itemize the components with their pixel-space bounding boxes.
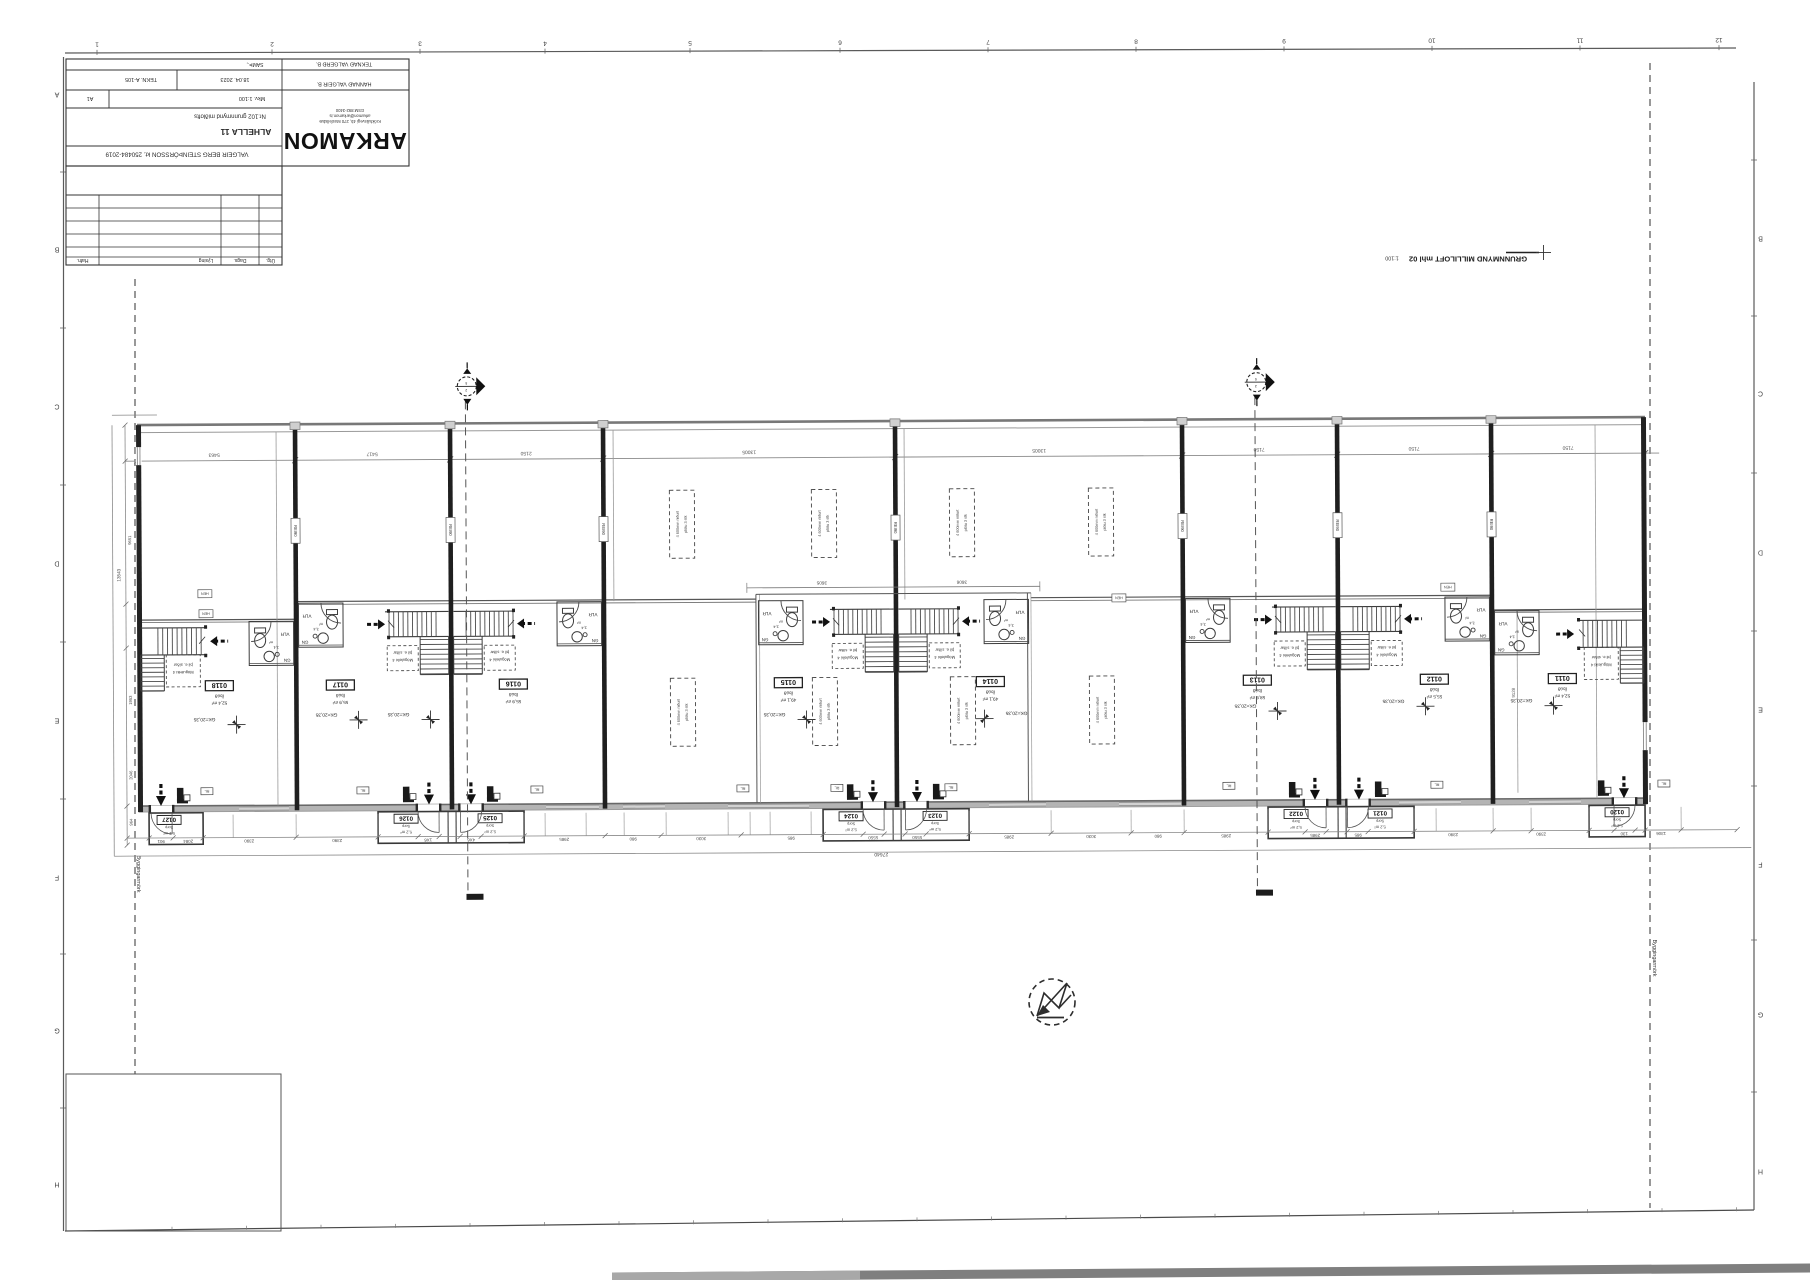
svg-text:2084: 2084 <box>183 839 193 844</box>
svg-text:130: 130 <box>1620 831 1628 836</box>
svg-text:Sorp: Sorp <box>486 823 494 827</box>
svg-text:VLR: VLR <box>1189 609 1199 614</box>
svg-text:F: F <box>1758 861 1762 868</box>
svg-text:Krókhálsvegi 4b, 270 Mosfellsb: Krókhálsvegi 4b, 270 Mosfellsbæ <box>319 119 381 124</box>
svg-text:GK=20,35: GK=20,35 <box>1234 702 1256 708</box>
svg-text:REI90: REI90 <box>601 523 606 535</box>
svg-text:1: 1 <box>95 41 99 48</box>
svg-text:HEN: HEN <box>202 611 210 615</box>
svg-text:3,4: 3,4 <box>1469 621 1474 625</box>
svg-text:REI90: REI90 <box>1489 519 1494 531</box>
svg-text:RL: RL <box>534 787 539 791</box>
svg-text:plötu 3 stk: plötu 3 stk <box>685 703 689 720</box>
svg-text:3030: 3030 <box>1086 834 1096 839</box>
svg-text:Sorp: Sorp <box>1292 819 1300 823</box>
svg-text:GN: GN <box>1019 636 1026 641</box>
svg-text:G: G <box>1758 1011 1763 1018</box>
svg-text:þil e. síðar: þil e. síðar <box>393 650 413 655</box>
svg-text:ALHELLA 11: ALHELLA 11 <box>220 127 271 137</box>
svg-text:2985: 2985 <box>1310 833 1320 838</box>
svg-text:2390: 2390 <box>1536 832 1546 837</box>
svg-text:0124: 0124 <box>844 812 858 819</box>
svg-text:3605: 3605 <box>816 580 827 585</box>
svg-text:964: 964 <box>129 818 134 826</box>
svg-text:Dags.: Dags. <box>233 257 246 263</box>
svg-text:A: A <box>54 91 59 98</box>
svg-text:1306: 1306 <box>1656 831 1666 836</box>
svg-text:4 600mm niðurt: 4 600mm niðurt <box>1094 508 1099 535</box>
svg-text:E: E <box>54 717 59 724</box>
svg-text:Möguleiki 4: Möguleiki 4 <box>172 670 193 675</box>
svg-text:GK=20,35: GK=20,35 <box>315 711 337 717</box>
svg-text:GSM:892-3400: GSM:892-3400 <box>335 108 364 113</box>
svg-text:Íbúð: Íbúð <box>1252 688 1261 694</box>
svg-text:REI90: REI90 <box>448 524 453 536</box>
svg-text:9128: 9128 <box>1511 687 1516 697</box>
svg-text:5550: 5550 <box>912 835 922 840</box>
svg-text:Sorp: Sorp <box>931 821 939 825</box>
svg-text:plötu 3 stk: plötu 3 stk <box>965 702 969 719</box>
svg-text:4 600mm niðurt: 4 600mm niðurt <box>1095 696 1100 723</box>
svg-text:1X6: 1X6 <box>424 838 432 843</box>
svg-text:SAMÞ.,: SAMÞ., <box>247 61 264 67</box>
svg-text:GN: GN <box>1480 633 1487 638</box>
svg-text:3,4: 3,4 <box>274 645 279 649</box>
svg-text:49,1 m²: 49,1 m² <box>982 696 998 701</box>
svg-text:0117: 0117 <box>333 680 348 687</box>
svg-text:Möguleiki 4: Möguleiki 4 <box>1279 653 1300 658</box>
svg-text:13005: 13005 <box>742 449 756 455</box>
svg-text:5463: 5463 <box>208 451 219 457</box>
svg-text:VLR: VLR <box>302 614 312 619</box>
svg-text:2390: 2390 <box>244 838 254 843</box>
svg-text:ARKAMON: ARKAMON <box>283 128 407 154</box>
svg-text:985: 985 <box>1354 833 1362 838</box>
svg-text:arkamon@arkamon.is: arkamon@arkamon.is <box>329 114 370 119</box>
svg-text:þil e. síðar: þil e. síðar <box>1591 655 1611 660</box>
svg-text:52,4 m²: 52,4 m² <box>1554 693 1570 698</box>
svg-text:3,4: 3,4 <box>1008 623 1013 627</box>
svg-text:C: C <box>1758 390 1763 397</box>
svg-text:Möguleiki 4: Möguleiki 4 <box>1376 653 1397 658</box>
svg-text:VLR: VLR <box>1498 621 1508 626</box>
svg-text:4 600mm niðurt: 4 600mm niðurt <box>956 697 961 724</box>
svg-text:VLR: VLR <box>1476 607 1486 612</box>
svg-text:GN: GN <box>762 637 769 642</box>
svg-text:Byggingarmörk: Byggingarmörk <box>135 856 141 893</box>
svg-text:9: 9 <box>1282 37 1286 44</box>
svg-text:55,5 m²: 55,5 m² <box>1426 694 1442 699</box>
svg-text:5,2 m²: 5,2 m² <box>1374 825 1386 830</box>
svg-text:E: E <box>1758 706 1763 713</box>
svg-text:3,4: 3,4 <box>1509 634 1514 638</box>
svg-text:HEN: HEN <box>201 591 209 595</box>
svg-text:0127: 0127 <box>162 816 176 823</box>
svg-text:VLR: VLR <box>588 612 598 617</box>
svg-text:GK=20,35: GK=20,35 <box>1005 710 1027 716</box>
svg-text:6: 6 <box>838 38 842 45</box>
svg-text:H: H <box>1758 1168 1763 1175</box>
svg-text:0120: 0120 <box>1610 808 1624 815</box>
svg-text:GN: GN <box>302 640 309 645</box>
svg-text:þil e. síðar: þil e. síðar <box>1280 646 1300 651</box>
svg-text:F: F <box>55 874 59 881</box>
svg-text:RL: RL <box>204 789 209 793</box>
svg-text:VALGEIR BERG STEINÞÓRSSON kt.: VALGEIR BERG STEINÞÓRSSON kt. 250484-201… <box>105 150 249 157</box>
svg-text:7: 7 <box>986 38 990 45</box>
svg-text:18.04. 2023: 18.04. 2023 <box>220 76 249 82</box>
svg-text:GN: GN <box>1498 647 1505 652</box>
svg-text:GN: GN <box>592 638 599 643</box>
svg-text:GK=20,35: GK=20,35 <box>763 711 785 717</box>
svg-text:RL: RL <box>834 786 839 790</box>
svg-text:RL: RL <box>360 788 365 792</box>
svg-text:Lýsing: Lýsing <box>199 257 214 263</box>
svg-text:þil e. síðar: þil e. síðar <box>935 647 955 652</box>
svg-text:0114: 0114 <box>983 677 998 684</box>
svg-text:4 600mm niðurt: 4 600mm niðurt <box>818 697 823 724</box>
svg-text:H: H <box>54 1181 59 1188</box>
svg-text:Útg.: Útg. <box>266 257 275 264</box>
svg-text:4 600mm niðurt: 4 600mm niðurt <box>676 698 681 725</box>
svg-text:RL: RL <box>948 785 953 789</box>
svg-text:HEN: HEN <box>1444 585 1452 589</box>
svg-text:Möguleiki 4: Möguleiki 4 <box>489 657 510 662</box>
svg-text:Nr.102 grunnmynd miðlofts: Nr.102 grunnmynd miðlofts <box>194 112 266 119</box>
svg-text:GN: GN <box>1189 635 1196 640</box>
svg-text:7150: 7150 <box>1562 444 1573 450</box>
svg-text:901: 901 <box>157 839 165 844</box>
svg-text:3,4: 3,4 <box>773 624 778 628</box>
svg-text:52,4 m²: 52,4 m² <box>211 701 227 706</box>
svg-text:3,4: 3,4 <box>581 625 586 629</box>
svg-text:0113: 0113 <box>1250 676 1265 683</box>
svg-text:Íbúð: Íbúð <box>1429 687 1438 693</box>
svg-text:2: 2 <box>465 388 467 392</box>
svg-text:B: B <box>1758 235 1763 242</box>
svg-text:5,2 m²: 5,2 m² <box>929 827 941 832</box>
svg-text:55,9 m²: 55,9 m² <box>505 699 521 704</box>
svg-text:HANNAÐ VALGEIR B.: HANNAÐ VALGEIR B. <box>316 81 371 87</box>
svg-text:GK=20,35: GK=20,35 <box>1510 697 1532 703</box>
svg-text:11: 11 <box>1576 36 1583 43</box>
svg-text:Sorp: Sorp <box>1376 819 1384 823</box>
svg-text:1953: 1953 <box>128 695 133 705</box>
svg-text:2985: 2985 <box>559 837 569 842</box>
svg-text:2: 2 <box>270 40 274 47</box>
svg-text:RL: RL <box>1434 782 1439 786</box>
svg-text:Möguleiki 4: Möguleiki 4 <box>392 658 413 663</box>
svg-text:þil e. síðar: þil e. síðar <box>1377 645 1397 650</box>
svg-text:4 600mm niðurt: 4 600mm niðurt <box>817 509 822 536</box>
svg-text:2: 2 <box>1255 384 1257 388</box>
svg-text:3,4: 3,4 <box>313 627 318 631</box>
svg-text:Sorp: Sorp <box>402 824 410 828</box>
svg-text:58,9 m²: 58,9 m² <box>1249 695 1265 700</box>
svg-text:0123: 0123 <box>928 812 942 819</box>
svg-text:0112: 0112 <box>1427 675 1442 682</box>
svg-text:Íbúð: Íbúð <box>985 689 994 695</box>
svg-text:Íbúð: Íbúð <box>336 693 345 699</box>
svg-text:VLR: VLR <box>762 611 772 616</box>
svg-text:REI90: REI90 <box>1335 519 1340 531</box>
svg-text:plötu 3 stk: plötu 3 stk <box>684 515 688 532</box>
svg-text:plötu 3 stk: plötu 3 stk <box>1103 513 1107 530</box>
svg-text:TEKN. A-105: TEKN. A-105 <box>125 76 157 82</box>
svg-text:GK=20,35: GK=20,35 <box>1382 698 1404 704</box>
svg-text:0116: 0116 <box>506 680 521 687</box>
svg-text:REI90: REI90 <box>293 525 298 537</box>
svg-text:4 600mm niðurt: 4 600mm niðurt <box>955 509 960 536</box>
svg-text:D: D <box>54 560 59 567</box>
svg-text:3606: 3606 <box>956 580 967 585</box>
svg-text:4 600mm niðurt: 4 600mm niðurt <box>675 510 680 537</box>
svg-text:REI90: REI90 <box>1180 520 1185 532</box>
svg-text:2985: 2985 <box>1221 833 1231 838</box>
svg-text:plötu 3 stk: plötu 3 stk <box>826 515 830 532</box>
svg-text:9651: 9651 <box>127 535 132 545</box>
svg-text:5550: 5550 <box>868 835 878 840</box>
svg-text:5,2 m²: 5,2 m² <box>484 829 496 834</box>
svg-text:2390: 2390 <box>332 838 342 843</box>
svg-text:10: 10 <box>1428 37 1436 44</box>
svg-text:0118: 0118 <box>212 681 227 688</box>
svg-text:0122: 0122 <box>1289 810 1303 817</box>
svg-text:Möguleiki 4: Möguleiki 4 <box>837 655 858 660</box>
svg-text:13543: 13543 <box>116 568 121 581</box>
svg-text:2985: 2985 <box>1004 834 1014 839</box>
svg-text:4: 4 <box>543 39 547 46</box>
svg-text:GN: GN <box>284 658 291 663</box>
svg-text:Mkv. 1:100: Mkv. 1:100 <box>239 95 266 101</box>
svg-text:Sorp: Sorp <box>847 821 855 825</box>
svg-text:B: B <box>54 246 59 253</box>
svg-text:GK=20,35: GK=20,35 <box>193 716 215 722</box>
svg-text:Íbúð: Íbúð <box>215 694 224 700</box>
svg-text:7150: 7150 <box>1408 445 1419 451</box>
svg-text:GK=20,35: GK=20,35 <box>387 711 409 717</box>
svg-text:GRUNNMYND MILLILOFT mhl 02: GRUNNMYND MILLILOFT mhl 02 <box>1409 254 1527 263</box>
svg-text:985: 985 <box>787 836 795 841</box>
svg-text:D: D <box>1758 549 1763 556</box>
svg-text:HEN: HEN <box>1115 596 1123 600</box>
svg-text:Íbúð: Íbúð <box>783 691 792 697</box>
svg-text:5,2 m²: 5,2 m² <box>1290 825 1302 830</box>
svg-text:3,4: 3,4 <box>1200 622 1205 626</box>
svg-text:0111: 0111 <box>1555 674 1570 681</box>
svg-text:980: 980 <box>629 836 637 841</box>
svg-text:Möguleiki 4: Möguleiki 4 <box>1590 662 1611 667</box>
svg-text:5: 5 <box>688 39 692 46</box>
svg-text:5,2 m²: 5,2 m² <box>845 827 857 832</box>
svg-text:þil e. síðar: þil e. síðar <box>173 662 193 667</box>
svg-text:Möguleiki 4: Möguleiki 4 <box>934 655 955 660</box>
svg-text:5417: 5417 <box>366 451 377 457</box>
svg-text:RL: RL <box>1661 781 1666 785</box>
svg-text:C: C <box>54 403 59 410</box>
svg-text:5: 5 <box>1255 377 1257 381</box>
svg-text:REI90: REI90 <box>893 522 898 534</box>
svg-text:2046: 2046 <box>128 770 133 780</box>
svg-text:Hafn.: Hafn. <box>77 257 89 263</box>
svg-text:49,1 m²: 49,1 m² <box>780 698 796 703</box>
svg-text:2390: 2390 <box>1448 832 1458 837</box>
svg-text:TEKNAÐ VALGERÐ B.: TEKNAÐ VALGERÐ B. <box>315 61 372 67</box>
svg-text:12: 12 <box>1715 36 1723 43</box>
svg-text:3030: 3030 <box>696 836 706 841</box>
svg-text:55,9 m²: 55,9 m² <box>332 700 348 705</box>
svg-text:A1: A1 <box>87 95 94 101</box>
svg-text:3: 3 <box>418 40 422 47</box>
svg-text:Íbúð: Íbúð <box>1557 686 1566 692</box>
svg-text:plötu 3 stk: plötu 3 stk <box>964 514 968 531</box>
svg-text:þil e. síðar: þil e. síðar <box>490 650 510 655</box>
svg-text:5,2 m²: 5,2 m² <box>400 830 412 835</box>
svg-text:G: G <box>54 1027 59 1034</box>
svg-text:plötu 3 stk: plötu 3 stk <box>1104 701 1108 718</box>
svg-text:plötu 3 stk: plötu 3 stk <box>827 703 831 720</box>
svg-text:Íbúð: Íbúð <box>508 692 517 698</box>
svg-text:8: 8 <box>1134 38 1138 45</box>
svg-text:þil e. síðar: þil e. síðar <box>838 648 858 653</box>
svg-text:VLR: VLR <box>1015 610 1025 615</box>
svg-text:2150: 2150 <box>520 450 531 456</box>
svg-text:980: 980 <box>1154 834 1162 839</box>
svg-text:5: 5 <box>465 381 467 385</box>
svg-text:RL: RL <box>740 786 745 790</box>
svg-text:1:100: 1:100 <box>1385 255 1399 261</box>
svg-text:RL: RL <box>1226 784 1231 788</box>
svg-text:Byggingarmörk: Byggingarmörk <box>1651 940 1657 977</box>
svg-text:13005: 13005 <box>1032 447 1046 453</box>
svg-text:0121: 0121 <box>1373 809 1387 816</box>
svg-text:0115: 0115 <box>781 678 796 685</box>
svg-text:27640: 27640 <box>874 851 888 857</box>
svg-text:0126: 0126 <box>399 814 413 821</box>
svg-text:0125: 0125 <box>483 814 497 821</box>
svg-text:VLR: VLR <box>280 632 290 637</box>
